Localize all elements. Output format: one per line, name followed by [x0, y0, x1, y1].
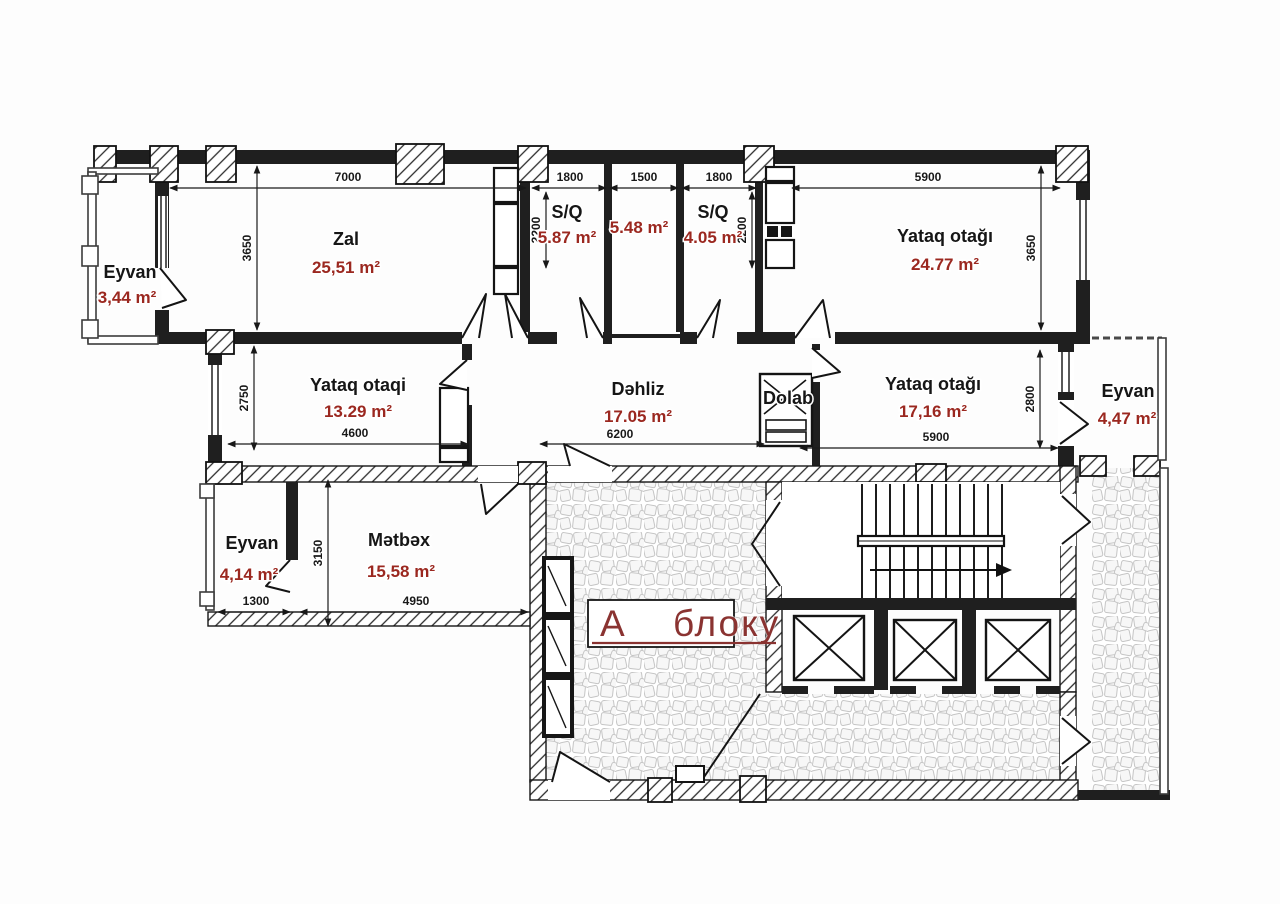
room-area-zal: 25,51 m²	[312, 258, 380, 277]
floor-plan-drawing: 7000 1800 1500 1800 5900 3650 2200 2200 …	[0, 0, 1280, 904]
dim-3650-left: 3650	[240, 234, 254, 261]
floor-plan-page: 7000 1800 1500 1800 5900 3650 2200 2200 …	[0, 0, 1280, 904]
wall-eyvan-divider	[286, 482, 298, 560]
room-area-sq2: 4.05 m²	[684, 228, 743, 247]
dim-3650-right: 3650	[1024, 234, 1038, 261]
door-sq2	[697, 300, 720, 338]
elevator-doors	[782, 686, 1060, 694]
dim-1500: 1500	[631, 170, 658, 184]
door-bedroom-13	[440, 360, 467, 390]
wall-top-outer	[95, 150, 1090, 164]
room-name-sq1: S/Q	[551, 202, 582, 222]
wall-stairs-bottom	[766, 598, 1076, 610]
wall-row-sep	[155, 332, 462, 344]
dim-1800b: 1800	[706, 170, 733, 184]
room-area-eyvan-447: 4,47 m²	[1098, 409, 1157, 428]
dolab-closet	[760, 374, 812, 446]
dim-1800a: 1800	[557, 170, 584, 184]
room-area-bedroom-24: 24.77 m²	[911, 255, 979, 274]
room-name-eyvan-447: Eyvan	[1101, 381, 1154, 401]
room-area-kitchen: 15,58 m²	[367, 562, 435, 581]
room-area-sq1: 5.87 m²	[538, 228, 597, 247]
room-name-zal: Zal	[333, 229, 359, 249]
door-bedroom-top	[795, 300, 830, 338]
wall-row3-top	[208, 466, 1078, 482]
room-name-eyvan-344: Eyvan	[103, 262, 156, 282]
door-bedroom-17	[812, 348, 840, 378]
block-label-text: А блоку	[600, 603, 780, 644]
threshold	[612, 334, 680, 338]
elevators	[782, 610, 1060, 694]
room-name-bedroom-24: Yataq otağı	[897, 226, 993, 246]
block-label: А блоку	[588, 600, 780, 647]
elevator-corridor-floor	[766, 694, 1060, 782]
room-name-dahliz: Dəhliz	[611, 379, 664, 399]
door-eyvan-344	[160, 268, 186, 308]
dim-5900-mid: 5900	[923, 430, 950, 444]
room-name-dolab: Dolab	[763, 388, 813, 408]
dim-5900-top: 5900	[915, 170, 942, 184]
wall-bottomleft	[208, 612, 530, 626]
room-area-eyvan-414: 4,14 m²	[220, 565, 279, 584]
wall-terrace-bottom	[1078, 790, 1170, 800]
dim-7000: 7000	[335, 170, 362, 184]
dim-6200: 6200	[607, 427, 634, 441]
door-kitchen	[481, 484, 518, 514]
stairs	[782, 482, 1060, 598]
dim-2750: 2750	[237, 384, 251, 411]
room-area-bedroom-17: 17,16 m²	[899, 402, 967, 421]
room-name-sq2: S/Q	[697, 202, 728, 222]
dim-4600: 4600	[342, 426, 369, 440]
door-sq1	[580, 298, 603, 338]
room-area-548: 5.48 m²	[610, 218, 669, 237]
door-zal-left-leaf	[462, 294, 486, 338]
door-entry	[564, 444, 610, 466]
wall-lobby-bottom	[530, 780, 1078, 800]
vent-shafts	[544, 558, 572, 736]
room-name-eyvan-414: Eyvan	[225, 533, 278, 553]
dim-4950: 4950	[403, 594, 430, 608]
right-terrace-floor	[1092, 468, 1162, 792]
room-name-kitchen: Mətbəx	[368, 530, 430, 550]
dim-2800: 2800	[1023, 385, 1037, 412]
room-area-eyvan-344: 3,44 m²	[98, 288, 157, 307]
dim-1300: 1300	[243, 594, 270, 608]
room-area-bedroom-13: 13.29 m²	[324, 402, 392, 421]
dim-3150: 3150	[311, 539, 325, 566]
room-area-dahliz: 17.05 m²	[604, 407, 672, 426]
room-name-bedroom-17: Yataq otağı	[885, 374, 981, 394]
room-name-bedroom-13: Yataq otaqi	[310, 375, 406, 395]
